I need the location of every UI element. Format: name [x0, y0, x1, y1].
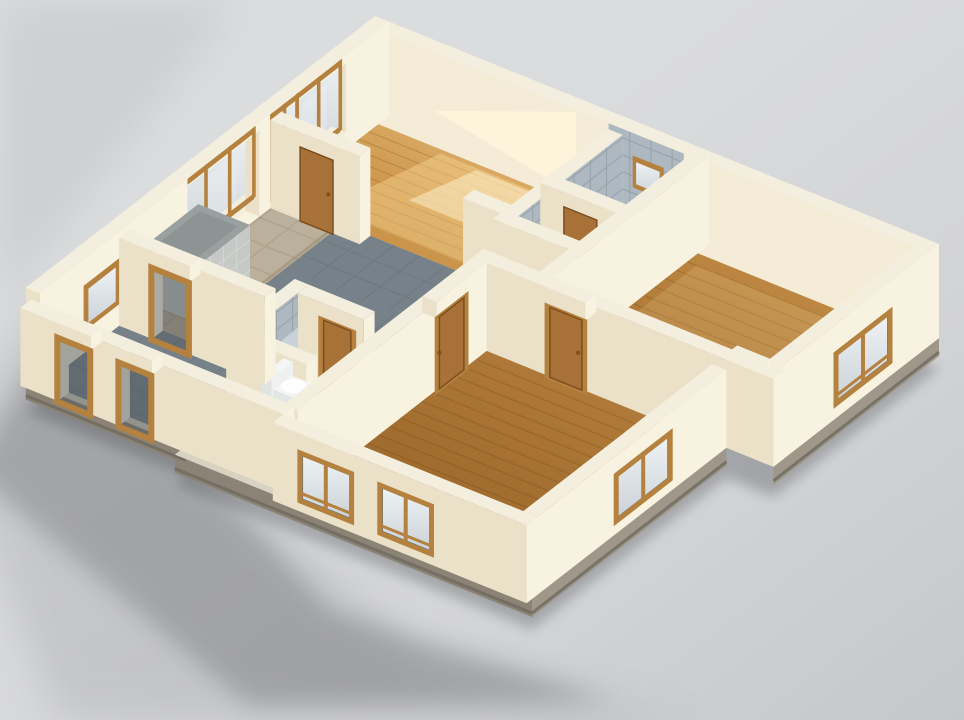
entry-door-frame-1: [57, 338, 90, 415]
door-living: [300, 147, 333, 234]
entry-door-frame-2: [118, 362, 151, 439]
door-bedroomR: [547, 306, 585, 391]
floorplan-model-svg: [0, 0, 964, 720]
floorplan-render: [0, 0, 964, 720]
